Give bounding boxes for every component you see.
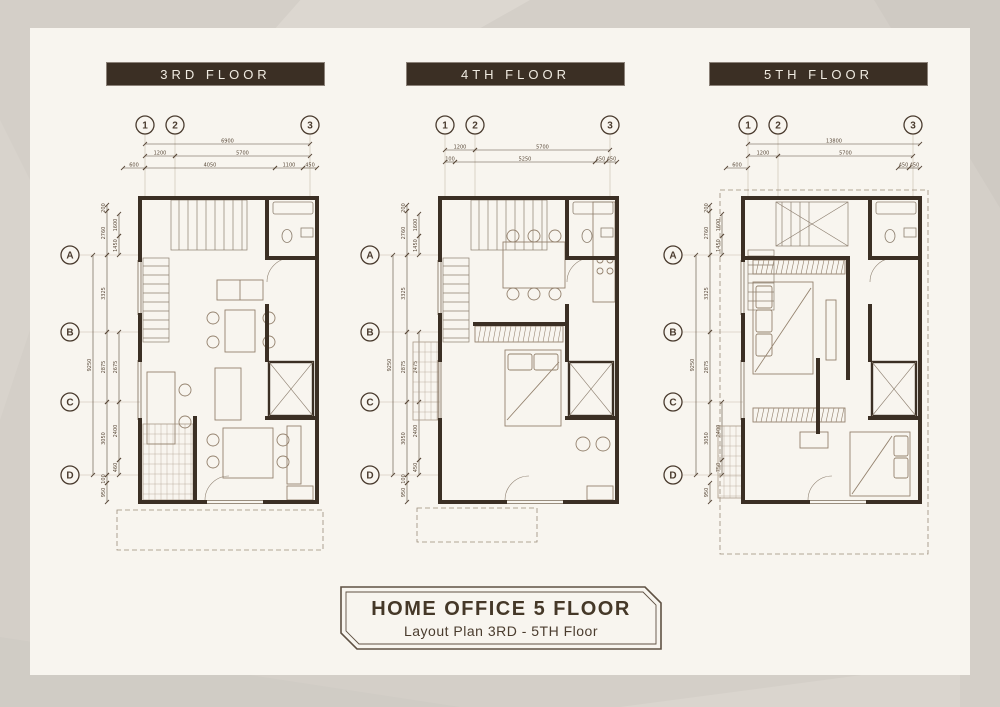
dimension-labels: 1380012005700600450450925033252875305020… [690,139,919,498]
svg-text:9250: 9250 [690,359,696,372]
svg-text:100: 100 [401,474,407,484]
svg-text:5700: 5700 [236,151,249,157]
svg-text:9250: 9250 [387,359,393,372]
furniture [147,280,313,500]
svg-text:3050: 3050 [401,432,407,445]
svg-text:C: C [66,397,73,408]
floor-title-4th-label: 4TH FLOOR [461,67,570,82]
grid-bubbles: 123ABCD [361,116,619,484]
svg-text:2400: 2400 [113,425,119,438]
svg-text:950: 950 [401,488,407,498]
svg-text:3: 3 [607,120,613,131]
floor-title-5th-label: 5TH FLOOR [764,67,873,82]
svg-text:950: 950 [704,488,710,498]
svg-text:100: 100 [445,157,455,163]
svg-text:1100: 1100 [283,163,296,169]
svg-text:4050: 4050 [204,163,217,169]
title-block: HOME OFFICE 5 FLOOR Layout Plan 3RD - 5T… [340,586,662,650]
svg-text:950: 950 [101,488,107,498]
svg-text:3050: 3050 [101,432,107,445]
svg-text:2760: 2760 [401,227,407,240]
floor-title-5th: 5TH FLOOR [710,63,927,85]
project-subtitle: Layout Plan 3RD - 5TH Floor [404,623,598,639]
grid-extension-lines [379,134,610,475]
svg-text:D: D [669,470,676,481]
svg-text:3050: 3050 [704,432,710,445]
svg-text:1: 1 [142,120,148,131]
svg-text:2: 2 [172,120,178,131]
svg-text:2400: 2400 [413,425,419,438]
svg-text:200: 200 [401,203,407,213]
lift-shaft [569,362,613,416]
floor-plan-3rd-drawing: 6900120057006004050110045092503325287530… [55,110,355,562]
grid-bubbles: 123ABCD [61,116,319,484]
svg-text:A: A [366,250,373,261]
svg-text:B: B [366,327,373,338]
svg-text:450: 450 [899,163,909,169]
floor-title-4th: 4TH FLOOR [407,63,624,85]
svg-text:B: B [66,327,73,338]
svg-text:2875: 2875 [401,361,407,374]
floor-panel-4th: 4TH FLOOR 120057001005250450450925033252… [355,60,655,570]
svg-text:D: D [66,470,73,481]
svg-text:9250: 9250 [87,359,93,372]
svg-text:450: 450 [607,157,617,163]
staircase [143,200,247,342]
project-title: HOME OFFICE 5 FLOOR [371,598,631,621]
svg-text:1600: 1600 [716,219,722,232]
bathroom-fixtures [205,202,313,500]
grid-bubbles: 123ABCD [664,116,922,484]
windows [138,260,319,504]
svg-text:450: 450 [413,463,419,473]
overhang-dashed-outline [720,190,928,554]
furniture [475,202,615,500]
svg-text:750: 750 [716,463,722,473]
plan-sheet: 3RD FLOOR 690012005700600405011004509250… [30,28,970,675]
grid-extension-lines [682,134,913,475]
svg-text:2: 2 [775,120,781,131]
furniture [753,260,910,496]
svg-text:1450: 1450 [413,239,419,252]
floor-plan-4th-drawing: 1200570010052504504509250332528753050200… [355,110,655,562]
svg-text:600: 600 [732,163,742,169]
floor-title-3rd-label: 3RD FLOOR [160,67,270,82]
svg-text:13800: 13800 [826,139,842,145]
svg-text:A: A [66,250,73,261]
svg-text:2400: 2400 [716,425,722,438]
balcony-deck [413,342,439,420]
svg-text:100: 100 [101,474,107,484]
floor-plan-5th-drawing: 1380012005700600450450925033252875305020… [658,110,958,562]
svg-text:3325: 3325 [101,287,107,300]
svg-text:6900: 6900 [221,139,234,145]
svg-text:1600: 1600 [413,219,419,232]
title-block-text: HOME OFFICE 5 FLOOR Layout Plan 3RD - 5T… [340,586,662,650]
staircase [443,200,547,342]
svg-text:1200: 1200 [454,145,467,151]
svg-text:2760: 2760 [101,227,107,240]
floor-panel-3rd: 3RD FLOOR 690012005700600405011004509250… [55,60,355,570]
svg-text:3325: 3325 [704,287,710,300]
svg-text:1450: 1450 [716,239,722,252]
svg-text:2: 2 [472,120,478,131]
bathroom-fixtures [505,202,613,500]
svg-text:1200: 1200 [154,151,167,157]
svg-text:2675: 2675 [113,361,119,374]
svg-text:2875: 2875 [101,361,107,374]
svg-text:450: 450 [596,157,606,163]
svg-text:5700: 5700 [536,145,549,151]
dimension-labels: 6900120057006004050110045092503325287530… [87,139,315,498]
svg-text:200: 200 [101,203,107,213]
svg-text:200: 200 [704,203,710,213]
floor-title-3rd: 3RD FLOOR [107,63,324,85]
svg-text:1450: 1450 [113,239,119,252]
svg-text:1600: 1600 [113,219,119,232]
svg-text:D: D [366,470,373,481]
svg-text:5250: 5250 [519,157,532,163]
svg-text:450: 450 [910,163,920,169]
svg-text:2475: 2475 [413,361,419,374]
svg-text:B: B [669,327,676,338]
svg-text:1: 1 [442,120,448,131]
floor-panel-5th: 5TH FLOOR 138001200570060045045092503325… [658,60,958,570]
svg-text:460: 460 [113,463,119,473]
svg-text:C: C [669,397,676,408]
svg-text:C: C [366,397,373,408]
svg-text:600: 600 [129,163,139,169]
svg-text:5700: 5700 [839,151,852,157]
overhang-dashed-outline [417,508,537,542]
svg-text:450: 450 [305,163,315,169]
walls [140,198,317,502]
svg-text:3: 3 [910,120,916,131]
overhang-dashed-outline [117,510,323,550]
bathroom-fixtures [808,202,916,500]
svg-text:3325: 3325 [401,287,407,300]
lift-shaft [269,362,313,416]
lift-shaft [872,362,916,416]
svg-text:1200: 1200 [757,151,770,157]
svg-text:A: A [669,250,676,261]
svg-text:3: 3 [307,120,313,131]
svg-text:2875: 2875 [704,361,710,374]
balcony-deck [143,424,193,500]
svg-text:2760: 2760 [704,227,710,240]
svg-text:1: 1 [745,120,751,131]
